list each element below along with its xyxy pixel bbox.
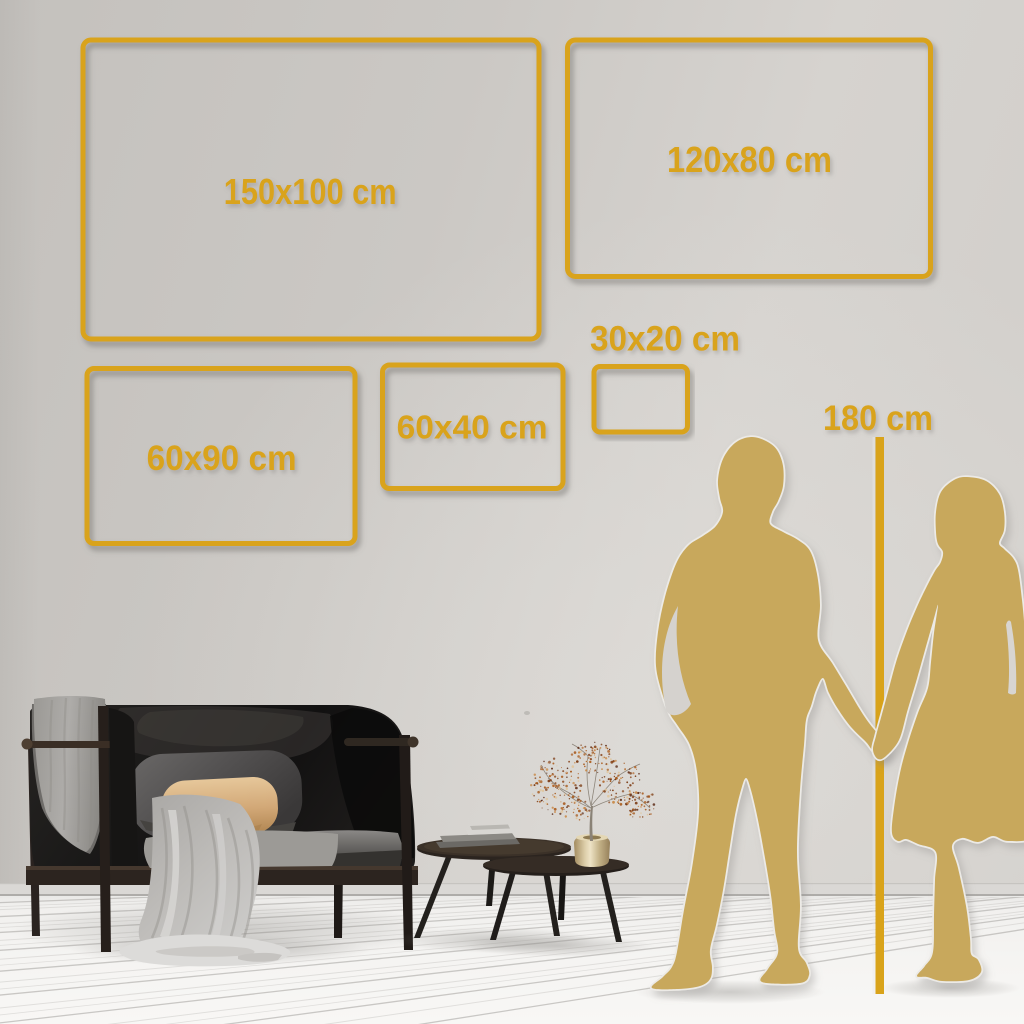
svg-text:60x40 cm: 60x40 cm <box>397 409 548 446</box>
svg-text:180 cm: 180 cm <box>823 399 933 438</box>
svg-text:150x100 cm: 150x100 cm <box>224 171 397 212</box>
svg-text:30x20 cm: 30x20 cm <box>590 320 740 359</box>
svg-text:120x80 cm: 120x80 cm <box>667 139 832 180</box>
svg-text:60x90 cm: 60x90 cm <box>147 439 297 478</box>
